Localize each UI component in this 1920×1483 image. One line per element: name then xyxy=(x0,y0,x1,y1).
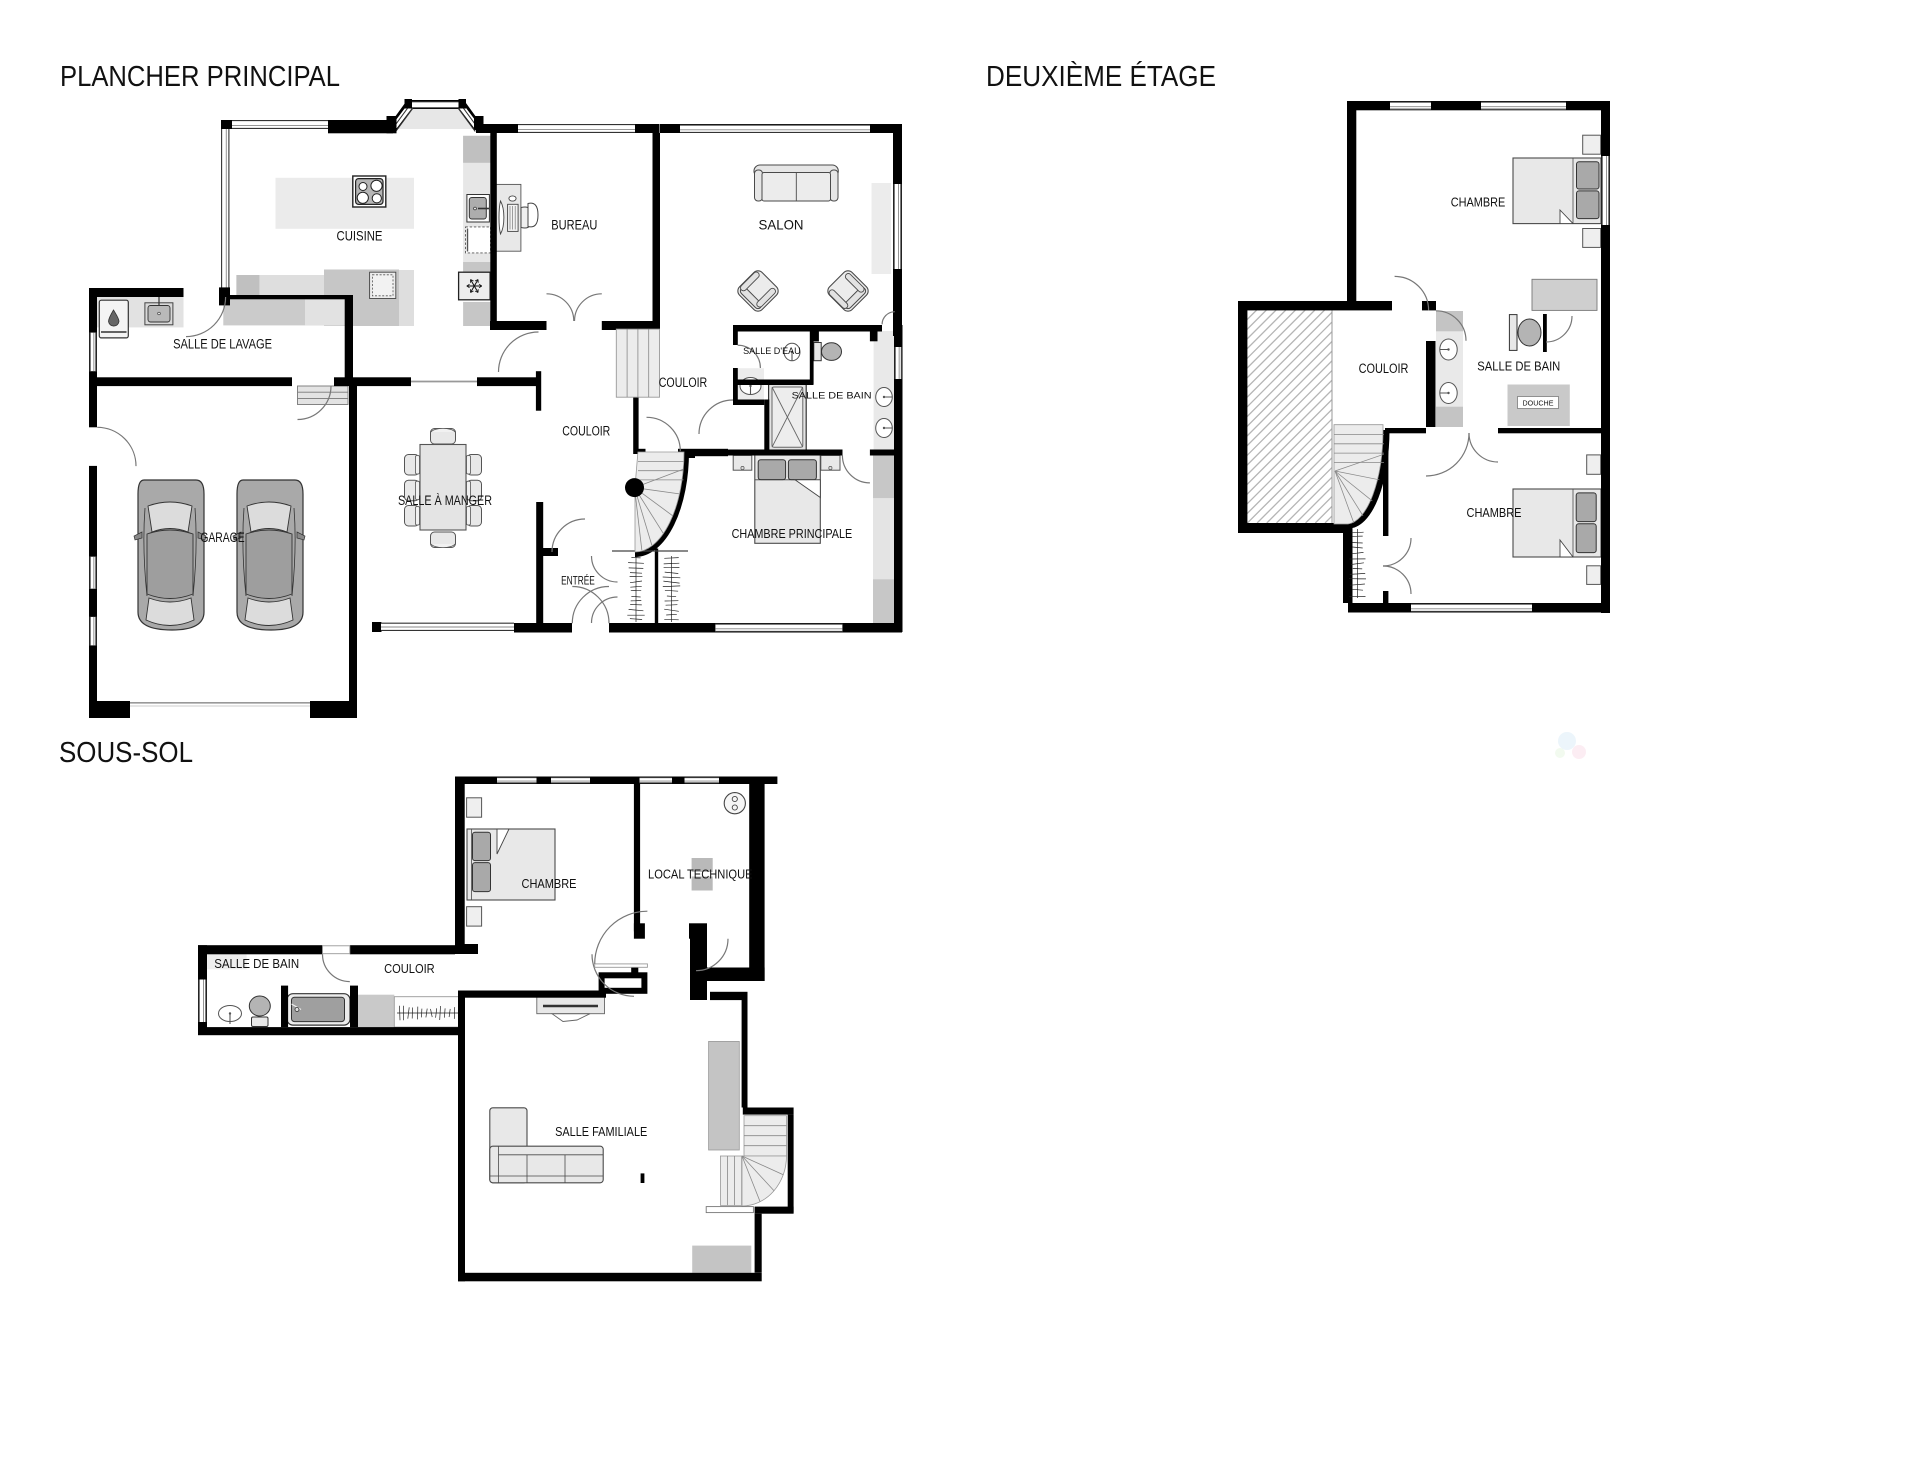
svg-text:SALLE DE BAIN: SALLE DE BAIN xyxy=(792,391,872,402)
svg-text:SALLE DE BAIN: SALLE DE BAIN xyxy=(214,957,299,971)
svg-text:COULOIR: COULOIR xyxy=(384,962,435,976)
svg-text:COULOIR: COULOIR xyxy=(1359,361,1409,376)
svg-text:ENTRÉE: ENTRÉE xyxy=(561,575,595,588)
svg-text:CHAMBRE: CHAMBRE xyxy=(522,877,577,891)
svg-text:PLANCHER PRINCIPAL: PLANCHER PRINCIPAL xyxy=(60,61,340,93)
svg-text:SALLE D'EAU: SALLE D'EAU xyxy=(743,346,801,357)
svg-text:DOUCHE: DOUCHE xyxy=(1523,401,1554,408)
svg-text:COULOIR: COULOIR xyxy=(562,424,610,439)
svg-text:CHAMBRE: CHAMBRE xyxy=(1467,506,1522,520)
svg-text:COULOIR: COULOIR xyxy=(659,375,708,390)
svg-text:CUISINE: CUISINE xyxy=(337,228,383,244)
svg-text:SALLE DE LAVAGE: SALLE DE LAVAGE xyxy=(173,337,272,352)
svg-text:SALLE DE BAIN: SALLE DE BAIN xyxy=(1477,360,1560,374)
svg-text:LOCAL TECHNIQUE: LOCAL TECHNIQUE xyxy=(648,868,753,882)
svg-text:GARAGE: GARAGE xyxy=(200,530,244,545)
svg-text:CHAMBRE PRINCIPALE: CHAMBRE PRINCIPALE xyxy=(732,527,853,541)
svg-text:SALLE FAMILIALE: SALLE FAMILIALE xyxy=(555,1125,647,1139)
svg-text:DEUXIÈME ÉTAGE: DEUXIÈME ÉTAGE xyxy=(986,61,1216,93)
svg-text:CHAMBRE: CHAMBRE xyxy=(1451,196,1506,210)
svg-text:SALLE À MANGER: SALLE À MANGER xyxy=(398,493,492,508)
svg-text:BUREAU: BUREAU xyxy=(551,217,597,233)
svg-text:SALON: SALON xyxy=(759,217,804,233)
svg-text:SOUS-SOL: SOUS-SOL xyxy=(59,737,193,769)
